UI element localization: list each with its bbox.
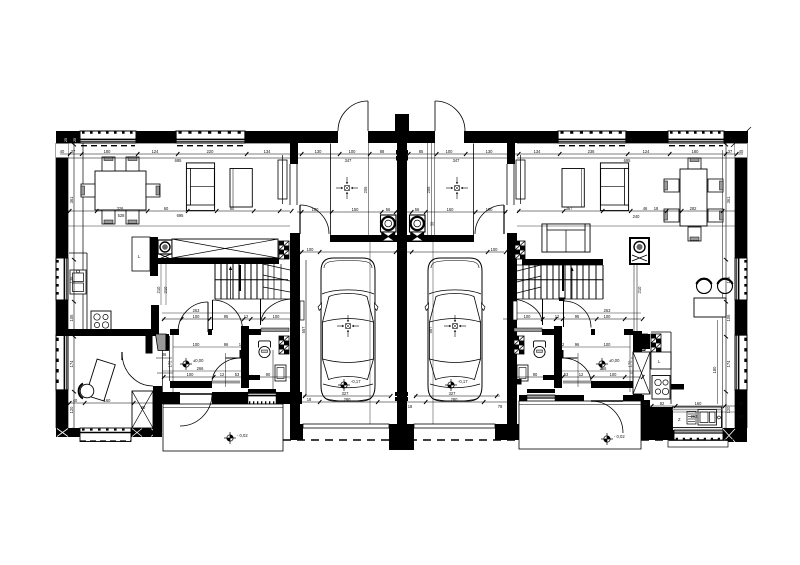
svg-text:96: 96: [224, 342, 229, 347]
svg-text:695: 695: [177, 213, 185, 218]
svg-text:25: 25: [64, 138, 68, 142]
svg-text:100: 100: [524, 314, 532, 319]
svg-text:160: 160: [695, 401, 703, 406]
svg-text:-0,17: -0,17: [458, 379, 468, 384]
svg-text:85: 85: [419, 149, 424, 154]
svg-text:174: 174: [726, 360, 731, 368]
svg-text:238: 238: [588, 149, 596, 154]
svg-text:220: 220: [207, 149, 215, 154]
svg-text:240: 240: [633, 214, 641, 219]
svg-text:12: 12: [555, 314, 560, 319]
svg-text:210: 210: [156, 286, 161, 294]
svg-text:210: 210: [637, 286, 642, 294]
svg-text:12: 12: [560, 342, 565, 347]
svg-text:40: 40: [739, 414, 744, 419]
svg-text:180: 180: [104, 149, 112, 154]
svg-text:95: 95: [224, 314, 229, 319]
svg-text:56: 56: [415, 207, 420, 212]
svg-text:172: 172: [628, 360, 633, 368]
svg-text:12: 12: [220, 372, 225, 377]
svg-text:Z: Z: [678, 417, 681, 422]
svg-text:695: 695: [624, 158, 632, 163]
svg-text:172: 172: [168, 360, 173, 368]
svg-text:53: 53: [235, 372, 240, 377]
svg-text:18: 18: [307, 397, 312, 402]
svg-text:160: 160: [104, 398, 112, 403]
svg-text:106: 106: [726, 314, 731, 322]
svg-text:±0,00: ±0,00: [193, 358, 204, 363]
svg-text:124: 124: [152, 149, 160, 154]
svg-text:90: 90: [266, 372, 271, 377]
svg-text:100: 100: [446, 149, 454, 154]
svg-text:557: 557: [301, 326, 306, 334]
svg-text:- 0,02: - 0,02: [237, 433, 248, 438]
svg-text:82: 82: [660, 401, 665, 406]
svg-text:100: 100: [486, 207, 494, 212]
svg-text:327: 327: [449, 391, 457, 396]
svg-text:203: 203: [399, 247, 407, 252]
svg-text:88: 88: [380, 149, 385, 154]
svg-text:263: 263: [193, 308, 201, 313]
svg-text:120: 120: [69, 406, 74, 414]
svg-text:36: 36: [162, 352, 167, 357]
svg-text:280: 280: [344, 397, 352, 402]
svg-text:40: 40: [739, 401, 744, 406]
svg-text:150: 150: [447, 207, 455, 212]
svg-text:100: 100: [273, 314, 281, 319]
svg-text:150: 150: [352, 207, 360, 212]
svg-text:263: 263: [604, 308, 612, 313]
svg-text:37: 37: [71, 149, 76, 154]
svg-text:282: 282: [690, 206, 698, 211]
svg-text:100: 100: [604, 342, 612, 347]
svg-text:53: 53: [564, 372, 569, 377]
svg-text:266: 266: [600, 366, 608, 371]
svg-text:12: 12: [239, 342, 244, 347]
svg-text:60: 60: [164, 206, 169, 211]
svg-text:280: 280: [451, 397, 459, 402]
svg-text:326: 326: [117, 206, 125, 211]
svg-text:37: 37: [728, 149, 733, 154]
svg-text:347: 347: [453, 158, 461, 163]
svg-text:130: 130: [315, 149, 323, 154]
svg-text:25: 25: [73, 138, 77, 142]
svg-text:557: 557: [428, 326, 433, 334]
svg-text:361: 361: [69, 196, 74, 204]
svg-text:130: 130: [486, 149, 494, 154]
svg-text:180: 180: [692, 149, 700, 154]
svg-text:90: 90: [533, 372, 538, 377]
svg-text:100: 100: [193, 314, 201, 319]
svg-text:174: 174: [69, 360, 74, 368]
svg-text:30: 30: [430, 221, 435, 226]
svg-text:135: 135: [69, 276, 74, 284]
svg-text:262: 262: [691, 414, 699, 419]
svg-text:135: 135: [726, 276, 731, 284]
svg-text:206: 206: [426, 186, 431, 194]
svg-text:134: 134: [264, 149, 272, 154]
svg-text:11: 11: [643, 401, 648, 406]
svg-text:18: 18: [408, 404, 413, 409]
svg-text:40: 40: [739, 149, 744, 154]
svg-text:12: 12: [579, 372, 584, 377]
svg-text:134: 134: [534, 149, 542, 154]
svg-text:180: 180: [712, 366, 717, 374]
svg-text:-0,17: -0,17: [351, 379, 361, 384]
svg-text:347: 347: [345, 158, 353, 163]
svg-text:100: 100: [312, 207, 320, 212]
svg-text:124: 124: [643, 149, 651, 154]
svg-text:100: 100: [193, 342, 201, 347]
svg-text:40: 40: [73, 398, 78, 403]
svg-text:96: 96: [575, 342, 580, 347]
svg-text:120: 120: [726, 406, 731, 414]
svg-text:100: 100: [307, 247, 315, 252]
svg-text:528: 528: [118, 213, 126, 218]
svg-text:695: 695: [175, 158, 183, 163]
svg-text:78: 78: [498, 404, 503, 409]
svg-text:- 0,02: - 0,02: [614, 434, 625, 439]
svg-text:40: 40: [60, 149, 65, 154]
svg-text:266: 266: [197, 366, 205, 371]
svg-text:100: 100: [187, 372, 195, 377]
svg-text:100: 100: [491, 247, 499, 252]
svg-text:206: 206: [363, 186, 368, 194]
svg-text:±0,00: ±0,00: [609, 358, 620, 363]
svg-text:327: 327: [342, 391, 350, 396]
svg-text:100: 100: [349, 149, 357, 154]
svg-text:12: 12: [244, 314, 249, 319]
svg-text:100: 100: [610, 372, 618, 377]
svg-text:95: 95: [575, 314, 580, 319]
svg-text:106: 106: [69, 314, 74, 322]
svg-text:18: 18: [654, 206, 659, 211]
svg-text:210: 210: [163, 286, 168, 294]
svg-text:80: 80: [141, 405, 146, 410]
svg-text:361: 361: [726, 196, 731, 204]
svg-text:46: 46: [643, 206, 648, 211]
svg-text:80: 80: [230, 206, 235, 211]
svg-text:56: 56: [386, 207, 391, 212]
svg-text:367: 367: [566, 206, 574, 211]
svg-text:100: 100: [604, 314, 612, 319]
